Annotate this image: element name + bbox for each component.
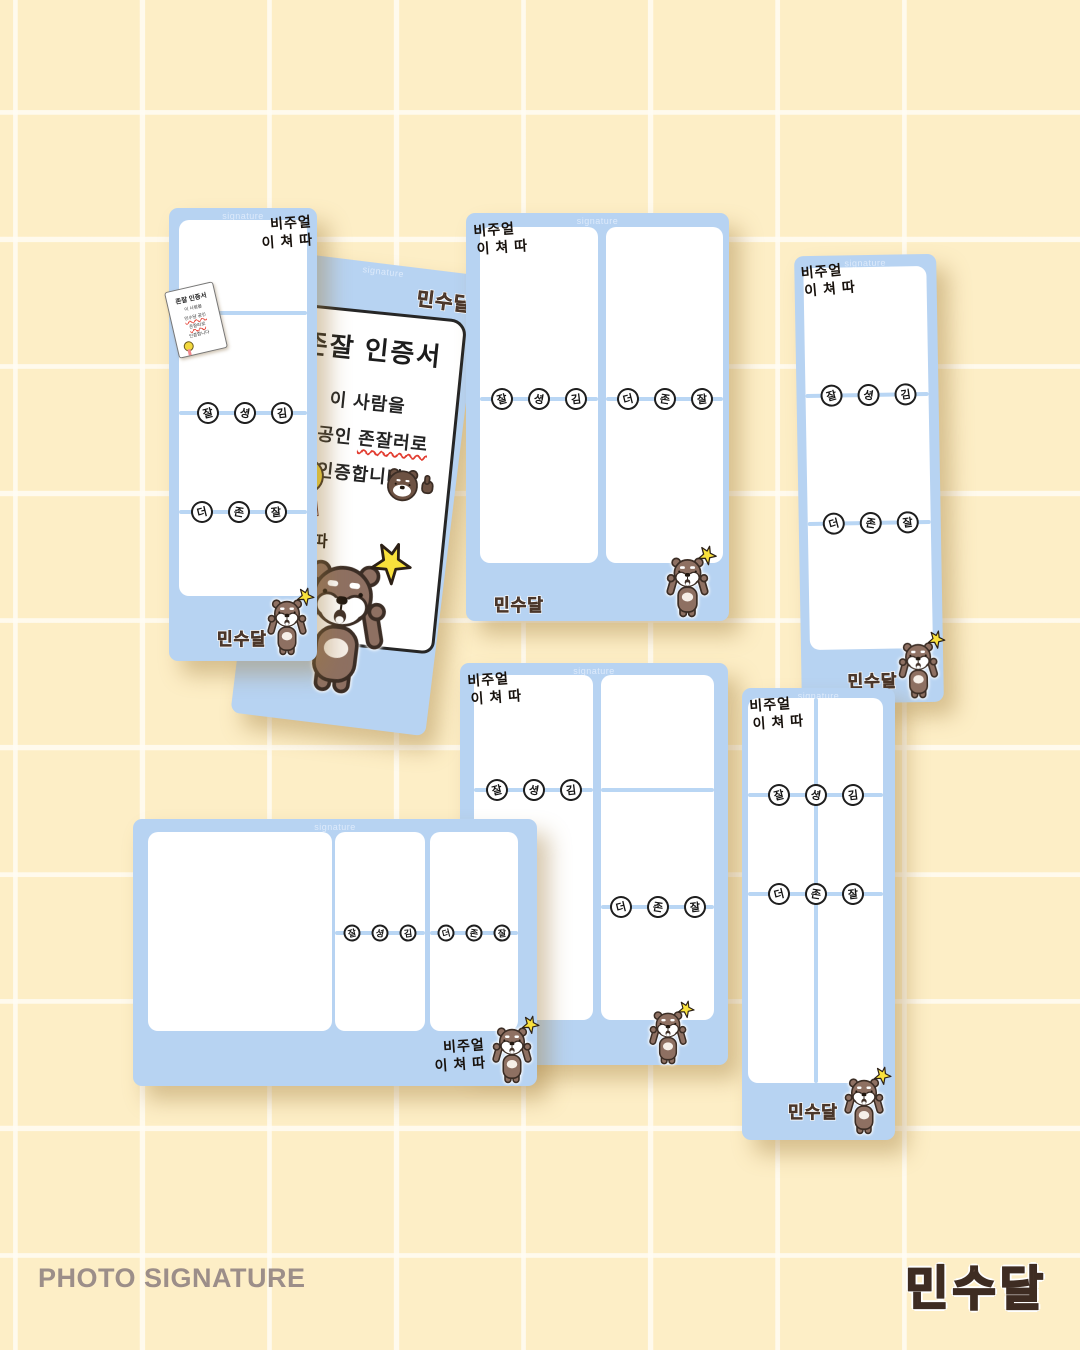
card-slim-2: signature 잘 셩 김 더 존 잘 비주얼 이 쳐 따 민수달 — [794, 254, 944, 704]
visual-caption-line2: 이 쳐 따 — [468, 687, 523, 708]
brand-logo: 민수달 — [494, 591, 544, 616]
stamp-row: 잘 셩 김 — [344, 925, 417, 942]
stamp-row: 더 존 잘 — [610, 896, 706, 918]
stamp-char: 더 — [189, 499, 216, 526]
stamp-row: 더 존 잘 — [191, 501, 287, 523]
stamp-row: 잘 셩 김 — [197, 402, 293, 424]
stamp-row: 더 존 잘 — [438, 925, 511, 942]
card-landscape: signature 잘 셩 김 더 존 잘 비주얼 이 쳐 따 — [133, 819, 537, 1086]
stamp-char: 김 — [841, 783, 866, 808]
brand-logo-large: 민수달 — [905, 1250, 1047, 1319]
photo-panel — [148, 832, 332, 1031]
bear-character-icon — [648, 1009, 688, 1066]
bear-character-icon — [665, 555, 710, 619]
certificate-line2-highlight: 존잘러로 — [357, 428, 429, 455]
stamp-char: 김 — [559, 778, 584, 803]
stamp-char: 셩 — [370, 923, 389, 942]
visual-caption-line2: 이 쳐 따 — [750, 712, 805, 733]
stamp-char: 잘 — [818, 382, 845, 409]
sparkle-icon — [695, 543, 720, 568]
visual-caption: 비주얼 이 쳐 따 — [473, 219, 529, 258]
card-two-column: signature 잘 셩 김 더 존 잘 비주얼 이 쳐 따 민수달 — [466, 213, 729, 621]
bear-thumbsup-icon — [382, 464, 438, 507]
visual-caption: 비주얼 이 쳐 따 — [257, 213, 313, 252]
stamp-char: 셩 — [526, 386, 551, 411]
visual-caption: 비주얼 이 쳐 따 — [467, 669, 523, 708]
brand-logo: 민수달 — [788, 1098, 838, 1123]
photo-panel — [803, 266, 933, 650]
stamp-char: 김 — [893, 382, 918, 407]
stamp-row: 잘 셩 김 — [820, 383, 916, 407]
stamp-char: 존 — [652, 386, 677, 411]
stamp-char: 셩 — [232, 400, 257, 425]
visual-caption-line2: 이 쳐 따 — [432, 1054, 487, 1075]
stamp-char: 잘 — [841, 882, 866, 907]
stamp-char: 김 — [270, 401, 295, 426]
stamp-char: 더 — [436, 923, 457, 944]
visual-caption: 비주얼 이 쳐 따 — [430, 1036, 486, 1075]
stamp-char: 존 — [803, 881, 828, 906]
stamp-char: 잘 — [766, 782, 793, 809]
signature-label: signature — [133, 822, 537, 832]
stamp-char: 더 — [615, 386, 642, 413]
stamp-char: 잘 — [489, 386, 516, 413]
page-title: PHOTO SIGNATURE — [38, 1263, 306, 1294]
stamp-char: 존 — [226, 499, 251, 524]
stamp-char: 존 — [464, 923, 483, 942]
bear-character-icon — [843, 1076, 885, 1136]
stamp-row: 잘 셩 김 — [768, 784, 864, 806]
stamp-char: 잘 — [342, 923, 363, 944]
stamp-char: 잘 — [895, 510, 920, 535]
stamp-row: 더 존 잘 — [768, 883, 864, 905]
stamp-char: 더 — [820, 510, 847, 537]
divider-line — [601, 788, 714, 792]
stamp-char: 잘 — [690, 387, 715, 412]
visual-caption-line2: 이 쳐 따 — [259, 231, 314, 252]
stamp-char: 셩 — [803, 782, 828, 807]
brand-logo: 민수달 — [217, 625, 267, 650]
brand-logo: 민수달 — [415, 284, 473, 318]
stamp-char: 존 — [645, 894, 670, 919]
visual-caption: 비주얼 이 쳐 따 — [800, 260, 856, 300]
stamp-char: 셩 — [521, 777, 546, 802]
bear-character-icon — [897, 640, 940, 700]
stamp-row: 더 존 잘 — [617, 388, 713, 410]
card-grid: signature 잘 셩 김 더 존 잘 비주얼 이 쳐 따 민수달 — [742, 688, 895, 1140]
visual-caption: 비주얼 이 쳐 따 — [749, 694, 805, 733]
stamp-char: 잘 — [683, 895, 708, 920]
stamp-row: 잘 셩 김 — [486, 779, 582, 801]
photo-panel — [601, 675, 714, 1020]
stamp-char: 존 — [858, 511, 883, 536]
mini-medal-icon — [183, 340, 195, 352]
stamp-char: 김 — [564, 387, 589, 412]
bear-character-icon — [266, 597, 308, 657]
stamp-char: 잘 — [493, 924, 512, 943]
stamp-row: 잘 셩 김 — [491, 388, 587, 410]
stamp-row: 더 존 잘 — [823, 511, 919, 535]
stamp-char: 잘 — [195, 400, 222, 427]
stamp-char: 잘 — [484, 777, 511, 804]
product-showcase: signature 민수달 존잘 인증서 이 사람을 달공인 존잘러로 인증합니… — [0, 0, 1080, 1350]
visual-caption-line2: 이 쳐 따 — [474, 237, 529, 258]
stamp-char: 잘 — [264, 500, 289, 525]
stamp-char: 셩 — [856, 383, 881, 408]
stamp-char: 김 — [399, 924, 418, 943]
stamp-char: 더 — [608, 894, 635, 921]
card-slim-1: signature 잘 셩 김 더 존 잘 비주얼 이 쳐 따 존잘 인증서 이… — [169, 208, 317, 661]
bear-character-icon — [491, 1025, 533, 1085]
stamp-char: 더 — [766, 881, 793, 908]
